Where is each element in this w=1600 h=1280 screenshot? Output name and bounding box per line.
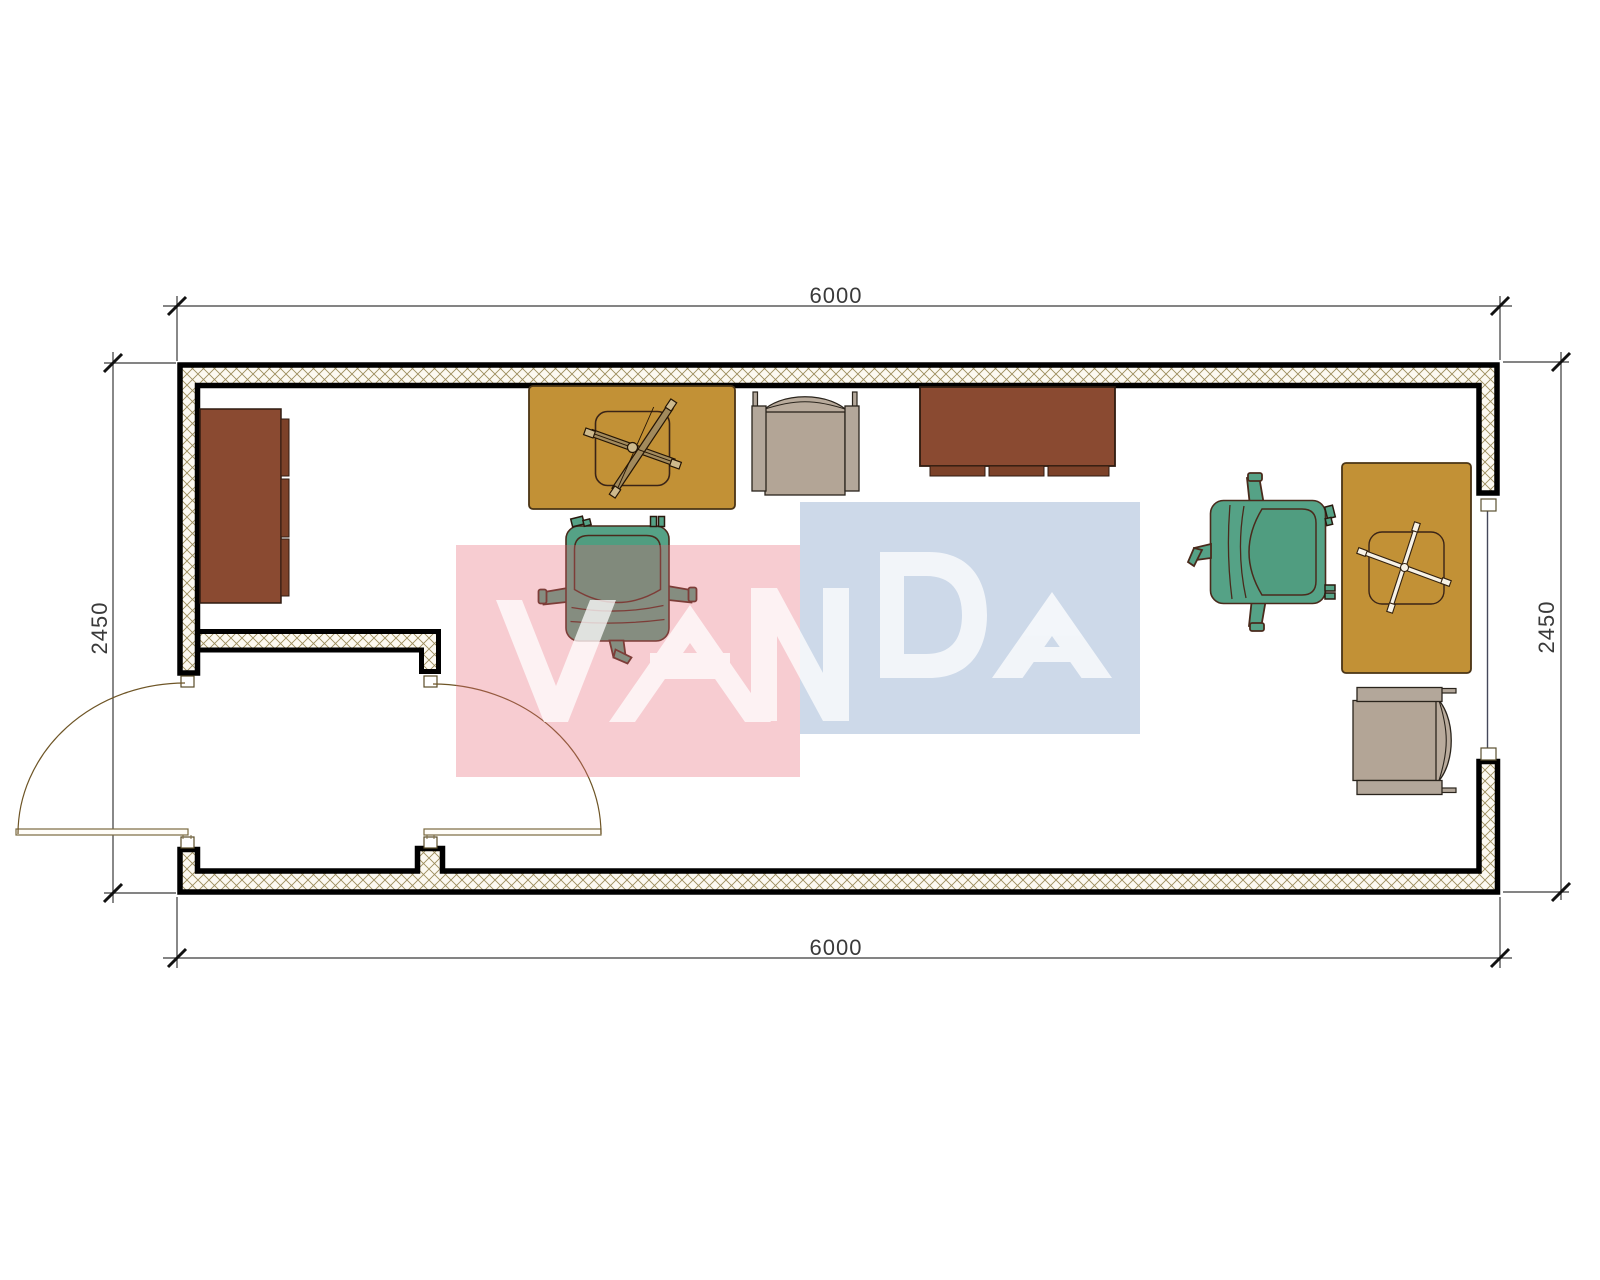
svg-text:6000: 6000 — [810, 935, 863, 960]
svg-text:2450: 2450 — [87, 602, 112, 655]
svg-text:2450: 2450 — [1534, 601, 1559, 654]
svg-text:6000: 6000 — [810, 283, 863, 308]
